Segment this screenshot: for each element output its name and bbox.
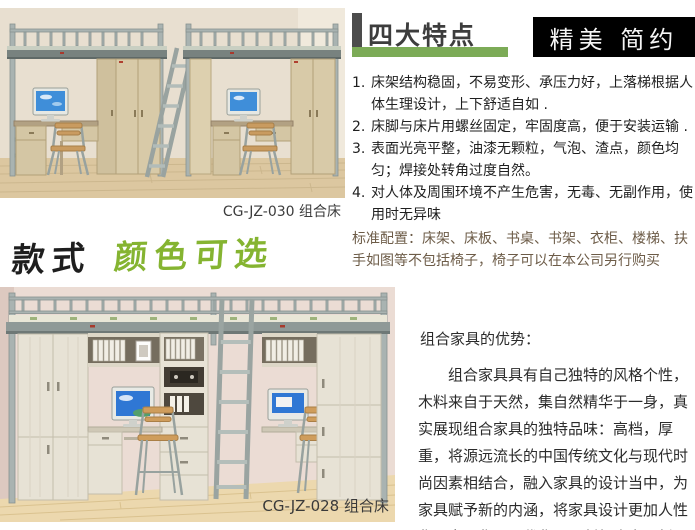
quality-badge: 精美 简约 [533, 17, 695, 57]
left-bookshelf [88, 333, 160, 367]
right-bookshelf [262, 333, 317, 367]
advantage-heading: 组合家具的优势： [420, 328, 540, 349]
product-photo-cg-jz-030 [0, 8, 345, 198]
feature-item: 床架结构稳固，不易变形、承压力好，上落梯根据人体生理设计，上下舒适自如 . [352, 72, 695, 116]
standard-config-note: 标准配置：床架、床板、书桌、书架、衣柜、楼梯、扶手如图等不包括椅子，椅子可以在本… [352, 228, 695, 272]
slogan-style-color-optional: 款式 颜色可选 [10, 227, 276, 282]
product-photo-cg-jz-028: CG-JZ-028 组合床 [0, 287, 395, 522]
right-wardrobe [317, 334, 381, 500]
slogan-part-black: 款式 [10, 238, 93, 279]
product-caption-top: CG-JZ-030 组合床 [0, 201, 341, 221]
feature-item: 表面光亮平整，油漆无颗粒，气泡、渣点，颜色均匀；焊接处转角过度自然。 [352, 138, 695, 182]
feature-item: 对人体及周围环境不产生危害，无毒、无副作用，使用时无异味 [352, 182, 695, 226]
product-detail-page: CG-JZ-030 组合床 款式 颜色可选 [0, 0, 695, 530]
loft-bed-illustration-028 [0, 287, 395, 522]
advantage-paragraph: 组合家具具有自己独特的风格个性，木料来自于天然，集自然精华于一身，真实展现组合家… [418, 362, 695, 530]
product-caption-bottom: CG-JZ-028 组合床 [262, 495, 389, 516]
slogan-part-green: 颜色可选 [113, 234, 276, 277]
loft-bed-illustration-030 [0, 8, 345, 198]
left-wardrobe [18, 334, 88, 500]
title-underline-bar [352, 47, 508, 57]
feature-item: 床脚与床片用螺丝固定，牢固度高，便于安装运输 . [352, 116, 695, 138]
feature-list: 床架结构稳固，不易变形、承压力好，上落梯根据人体生理设计，上下舒适自如 . 床脚… [352, 72, 695, 226]
